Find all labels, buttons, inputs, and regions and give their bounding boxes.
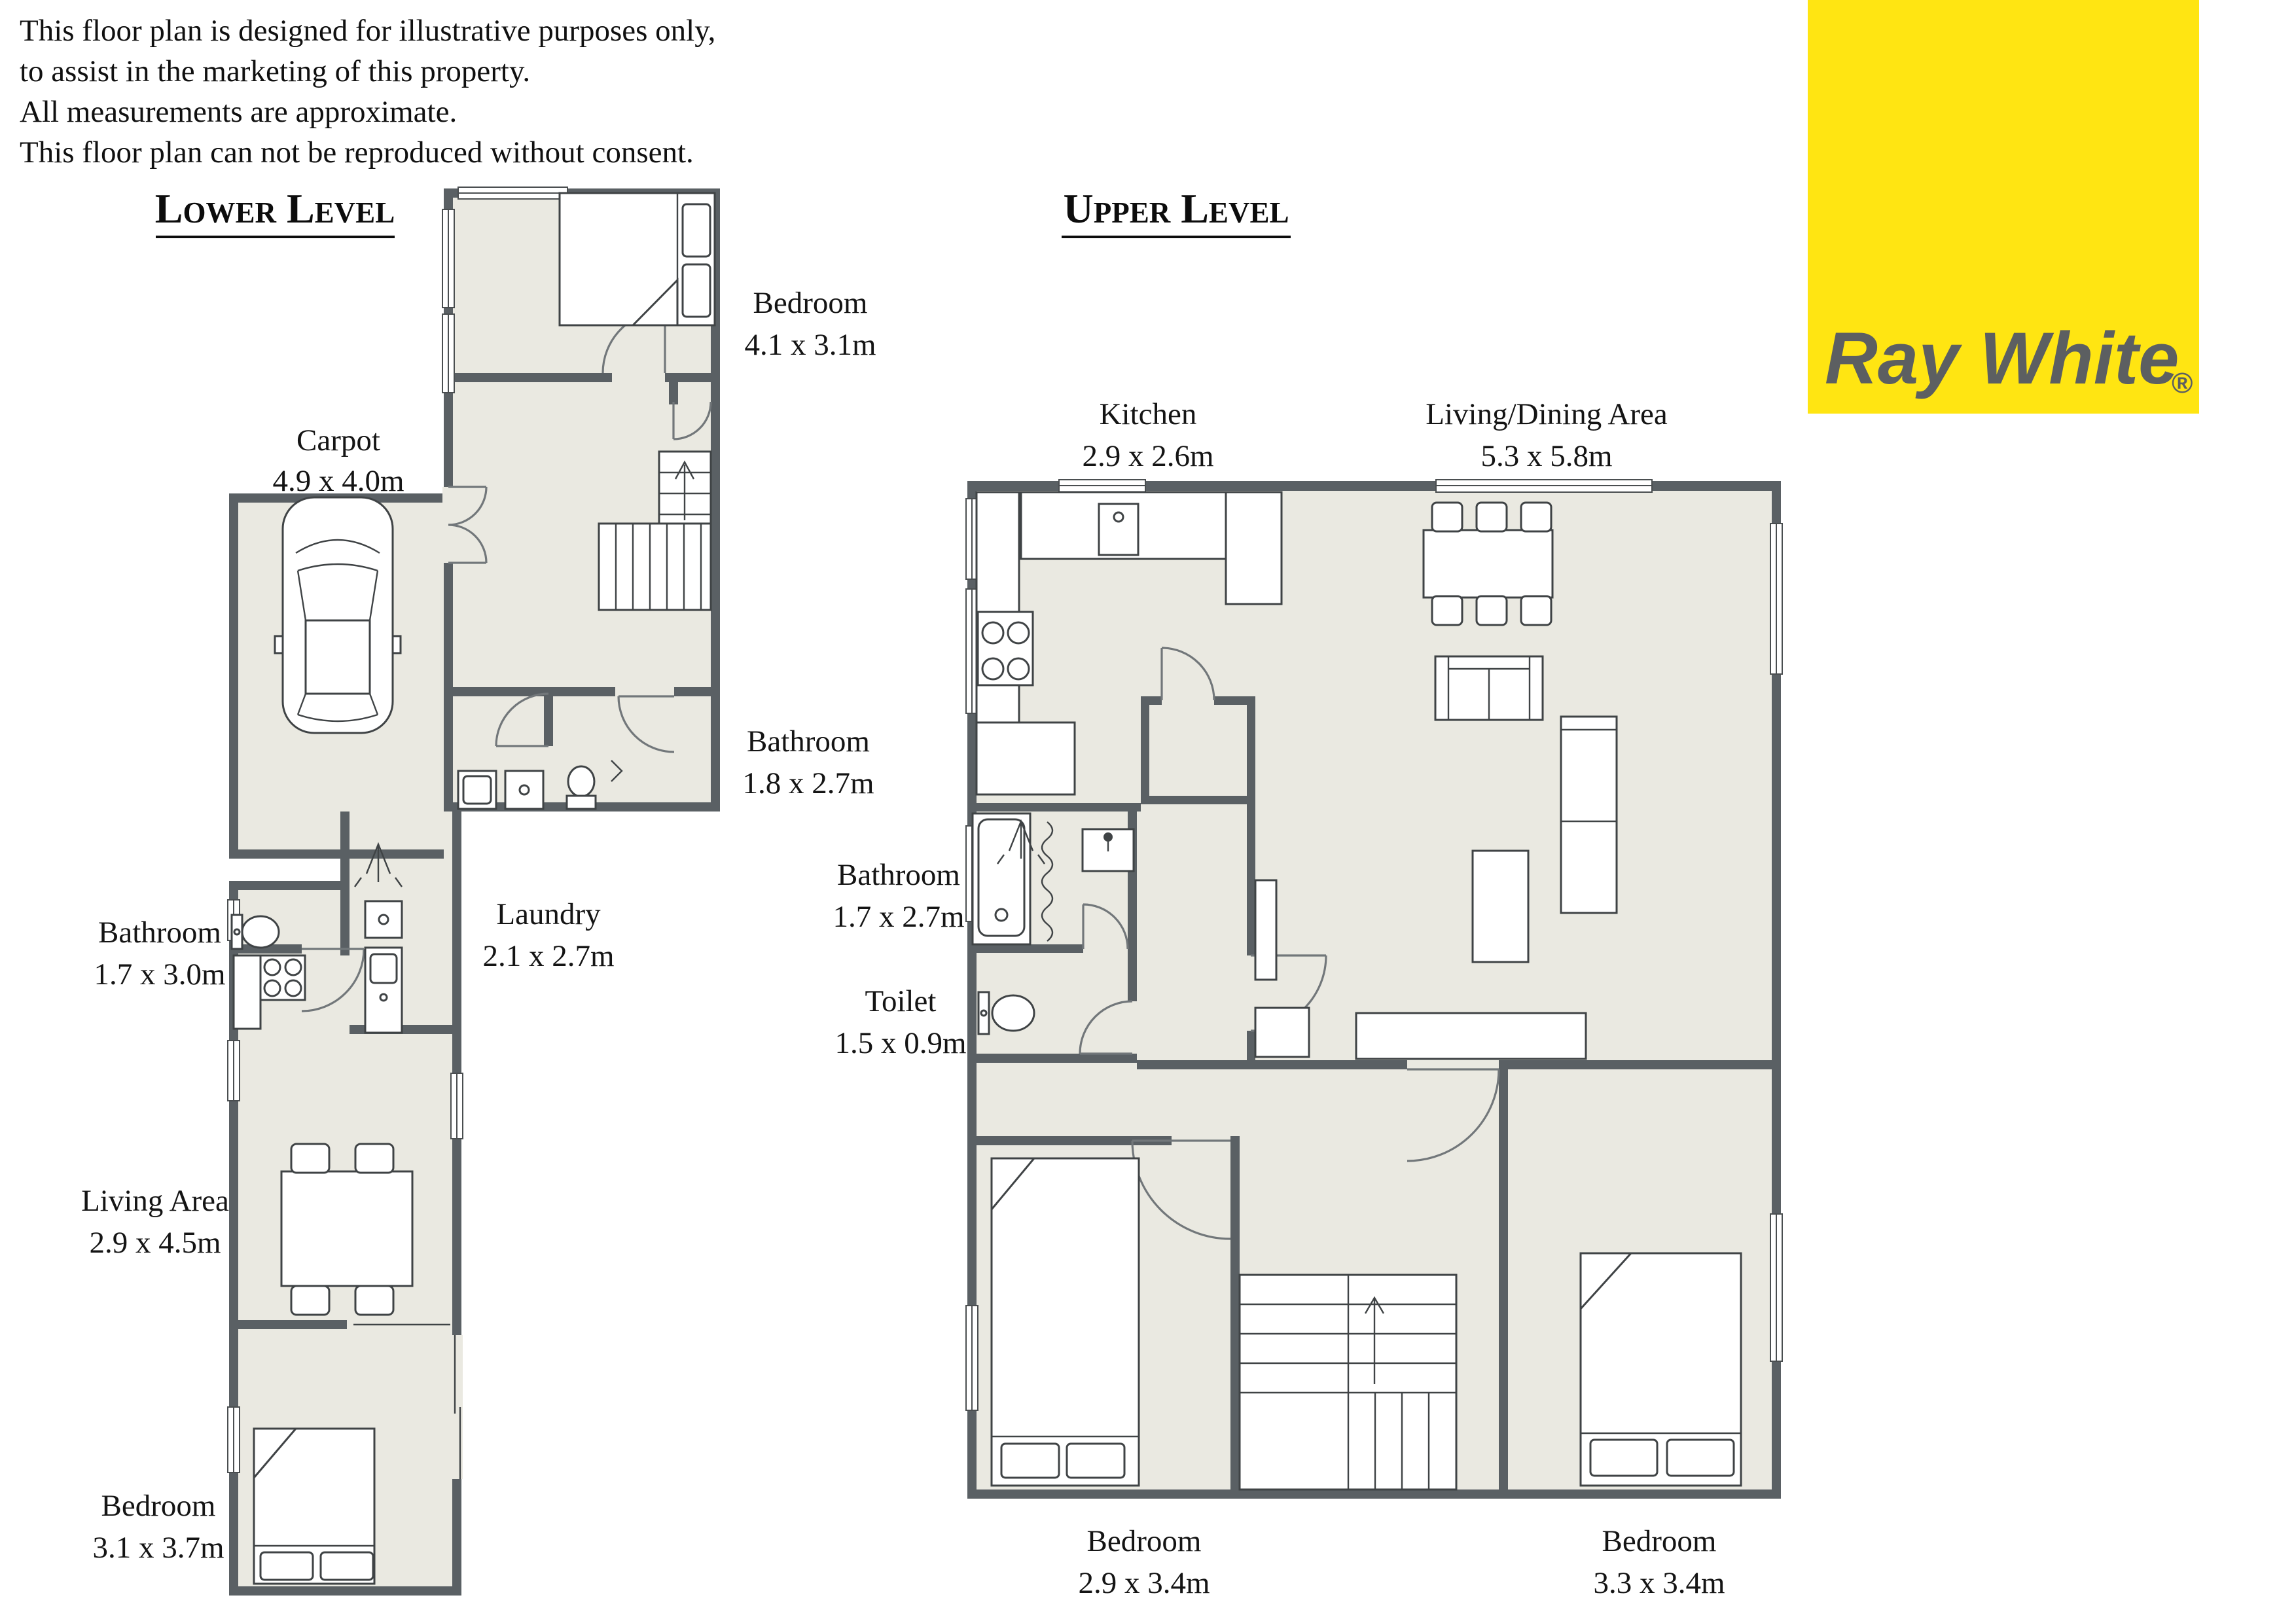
toilet-door-gap [1126,1001,1138,1054]
floor-plan-canvas: This floor plan is designed for illustra… [0,0,2296,1623]
floor-plan-page: This floor plan is designed for illustra… [0,0,2296,1623]
stove-icon [260,955,305,1000]
room-label: Bedroom [1602,1524,1717,1558]
room-label: Living/Dining Area [1426,397,1668,431]
room-label: Carpot [296,423,380,457]
counter [234,955,260,1029]
room-label: Bedroom [753,286,868,320]
room-dims: 5.3 x 5.8m [1480,439,1612,473]
laundry-sink-icon [365,901,402,938]
room-label: Toilet [865,984,937,1018]
brand-logo-text: Ray White [1825,317,2179,399]
room-dims: 4.9 x 4.0m [272,464,404,498]
room-dims: 1.7 x 3.0m [94,957,225,991]
room-dims: 1.8 x 2.7m [742,766,874,800]
washing-machine-icon [458,771,496,809]
disclaimer-line-4: This floor plan can not be reproduced wi… [20,135,694,169]
disclaimer: This floor plan is designed for illustra… [20,14,715,169]
room-label: Bathroom [747,724,870,758]
lower-level-plan: Bedroom 4.1 x 3.1m Carpot 4.9 x 4.0m Bat… [81,187,876,1596]
bed-icon [992,1158,1139,1486]
bed-icon [254,1429,374,1584]
upper-level-plan: Kitchen 2.9 x 2.6m Living/Dining Area 5.… [833,397,1782,1600]
car-icon [275,497,401,733]
tv-cabinet [1356,1013,1586,1059]
lower-level-title: Lower Level [155,185,395,232]
room-label: Bathroom [837,858,960,892]
room-dims: 3.1 x 3.7m [92,1531,224,1565]
toilet-icon [567,766,596,809]
stairs-icon [1240,1275,1456,1489]
room-dims: 1.5 x 0.9m [834,1026,966,1060]
cabinet [1255,880,1276,980]
sofa-icon [1435,656,1543,720]
room-label: Living Area [81,1184,229,1218]
cabinet [1255,1008,1309,1057]
toilet-icon [232,915,279,949]
room-label: Bedroom [1087,1524,1202,1558]
disclaimer-line-2: to assist in the marketing of this prope… [20,54,530,88]
room-dims: 2.9 x 3.4m [1078,1566,1210,1600]
room-label: Bathroom [98,916,221,950]
dining-table-icon [1424,503,1552,625]
armchair-sofa-icon [1561,717,1617,913]
room-label: Kitchen [1100,397,1197,431]
room-dims: 1.7 x 2.7m [833,900,964,934]
cooktop-icon [978,612,1033,685]
coffee-table-icon [1473,851,1528,962]
brand-registered-mark: ® [2172,367,2193,399]
room-label: Laundry [496,897,601,931]
level-titles: Lower Level Upper Level [155,185,1291,237]
room-label: Bedroom [101,1489,216,1523]
disclaimer-line-1: This floor plan is designed for illustra… [20,14,715,48]
upper-level-title: Upper Level [1064,185,1289,232]
vanity-sink-icon [1083,829,1134,871]
disclaimer-line-3: All measurements are approximate. [20,95,457,129]
room-dims: 2.9 x 4.5m [89,1226,221,1260]
lower-floor [234,193,715,1591]
room-dims: 3.3 x 3.4m [1593,1566,1725,1600]
sliding-door-gap [451,1335,463,1479]
room-dims: 2.9 x 2.6m [1082,439,1213,473]
room-dims: 4.1 x 3.1m [744,328,876,362]
laundry-tub-icon [365,948,402,1033]
sink-icon [505,771,543,809]
bed-icon [560,193,715,325]
brand-logo: Ray White ® [1808,0,2199,414]
toilet-icon [978,992,1034,1034]
room-dims: 2.1 x 2.7m [482,939,614,973]
bed-icon [1581,1253,1741,1486]
fridge-icon [977,722,1075,794]
